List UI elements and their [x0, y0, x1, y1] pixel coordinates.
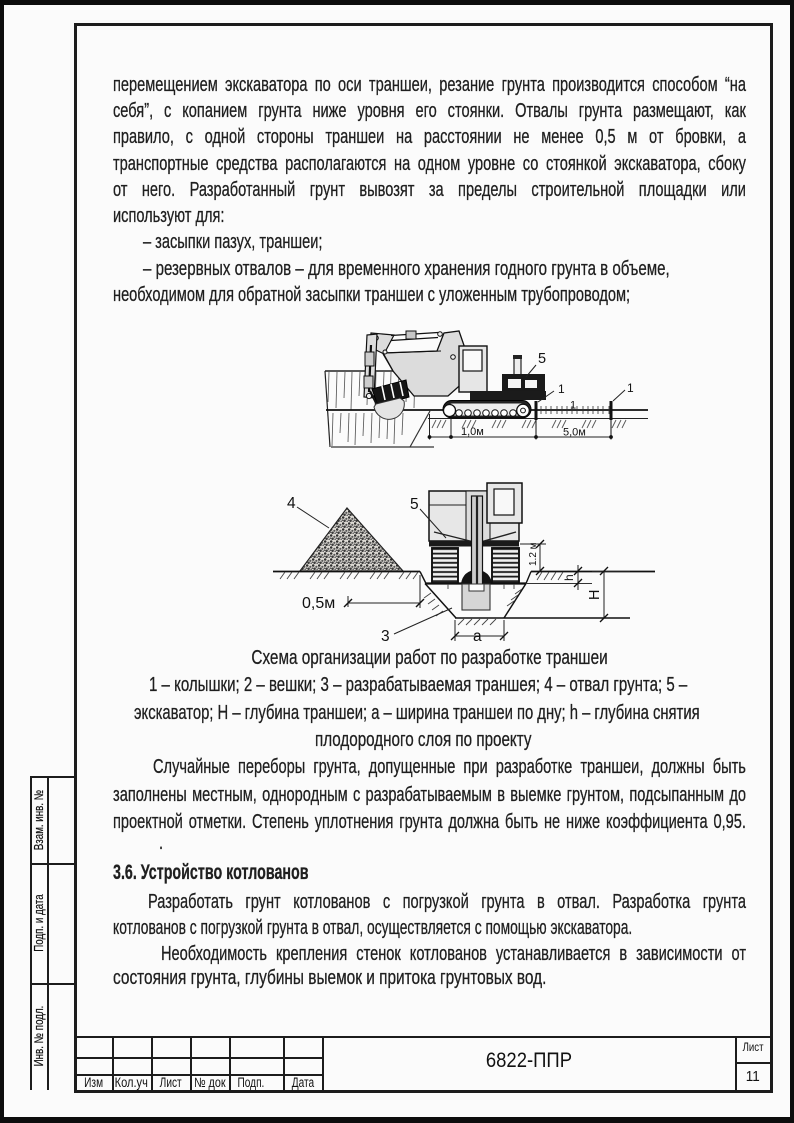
svg-text:h: h: [562, 574, 576, 581]
svg-text:1: 1: [627, 381, 634, 395]
svg-text:а: а: [473, 628, 482, 645]
svg-text:5: 5: [538, 351, 546, 367]
svg-text:0,5м: 0,5м: [302, 595, 335, 612]
svg-text:3: 3: [381, 628, 390, 645]
svg-text:4: 4: [287, 495, 296, 512]
svg-text:5,0м: 5,0м: [563, 427, 586, 439]
svg-text:1,0м: 1,0м: [461, 426, 484, 438]
svg-text:1: 1: [558, 382, 565, 396]
svg-text:1: 1: [570, 400, 576, 412]
svg-text:Н: Н: [587, 590, 603, 600]
svg-text:5: 5: [410, 496, 419, 513]
svg-text:1.2 м: 1.2 м: [528, 542, 539, 566]
